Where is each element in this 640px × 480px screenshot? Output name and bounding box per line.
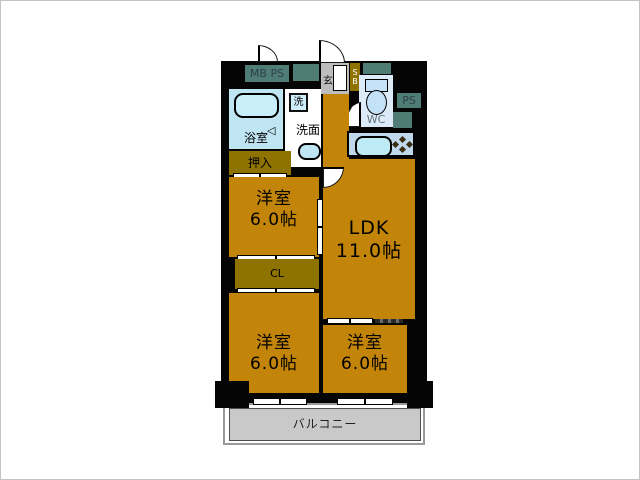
bedroom-top: 洋室 6.0帖 <box>229 177 319 257</box>
oshiire-closet: 押入 <box>229 151 291 175</box>
bedroom-bottom-right-size: 6.0帖 <box>323 354 407 375</box>
stove-burner-icon <box>399 146 406 153</box>
bedroom-top-size: 6.0帖 <box>229 210 319 231</box>
balcony-label: バルコニー <box>229 408 421 441</box>
ldk-size: 11.0帖 <box>323 240 415 263</box>
floor-plan: MB PS 玄 S B PS 浴室 洗面 洗 ◁ WC LDK 11.0帖 <box>0 0 640 480</box>
bedroom-bottom-right: 洋室 6.0帖 <box>323 325 407 393</box>
ldk-room: LDK 11.0帖 <box>323 159 415 319</box>
sink-icon <box>298 143 321 160</box>
meter-box-door-arc-icon <box>258 45 278 62</box>
bath-door-swing-icon: ◁ <box>267 125 279 137</box>
corner-pillar <box>215 381 249 408</box>
toilet-bowl-icon <box>366 90 387 115</box>
wc-room: WC <box>359 75 393 127</box>
stove-burner-icon <box>399 136 406 143</box>
bedroom-bottom-left-label: 洋室 6.0帖 <box>229 333 319 375</box>
service-duct <box>363 63 391 74</box>
wc-label: WC <box>359 113 393 126</box>
pipe-space-label: PS <box>397 93 421 108</box>
cl-closet: CL <box>235 259 319 289</box>
kitchen-counter <box>347 131 415 157</box>
entrance-label: 玄 <box>323 72 333 87</box>
bedroom-bottom-left-name: 洋室 <box>229 333 319 354</box>
ldk-label: LDK 11.0帖 <box>323 217 415 263</box>
ldk-name: LDK <box>323 217 415 240</box>
bedroom-bottom-left-size: 6.0帖 <box>229 354 319 375</box>
bedroom-bottom-right-label: 洋室 6.0帖 <box>323 333 407 375</box>
wall-stub <box>375 319 403 323</box>
hallway <box>323 94 349 159</box>
bedroom-partition-sliding-door-icon <box>317 199 323 255</box>
washroom-label: 洗面 <box>296 121 320 138</box>
corner-pillar <box>407 381 433 408</box>
balcony: バルコニー <box>223 403 425 445</box>
washing-machine-icon: 洗 <box>289 93 308 112</box>
pipe-space-duct <box>393 112 412 128</box>
stove-burner-icon <box>392 141 399 148</box>
bedroom-bottom-left: 洋室 6.0帖 <box>229 293 319 393</box>
service-duct <box>293 64 319 81</box>
balcony-window-icon <box>253 398 307 405</box>
entrance-door-arc-icon <box>319 40 345 63</box>
bedroom-top-label: 洋室 6.0帖 <box>229 189 319 231</box>
meter-box-label: MB PS <box>245 65 289 82</box>
bathtub-icon <box>234 93 279 118</box>
ldk-bedroom-sliding-door-icon <box>327 318 373 324</box>
stove-burner-icon <box>406 141 413 148</box>
bedroom-bottom-right-name: 洋室 <box>323 333 407 354</box>
kitchen-sink-icon <box>355 136 392 157</box>
balcony-window-icon <box>337 398 393 405</box>
bedroom-top-name: 洋室 <box>229 189 319 210</box>
entrance-door-leaf-icon <box>333 65 347 91</box>
